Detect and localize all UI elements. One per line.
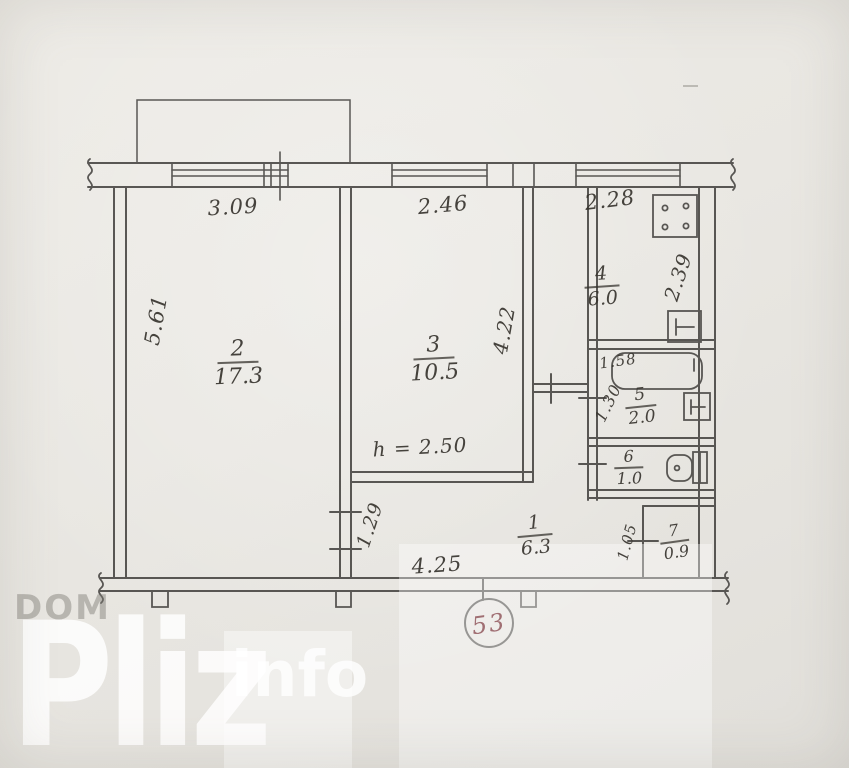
toilet-icon <box>667 452 707 483</box>
room-label-5: 5 2.0 <box>623 385 658 429</box>
room-4-area: 6.0 <box>587 286 619 310</box>
bath-sink-icon <box>684 393 710 420</box>
watermark-info-text: info <box>231 638 368 711</box>
room-2-number: 2 <box>217 337 258 364</box>
dim-top-mid: 2.46 <box>417 191 470 219</box>
watermark-pliz-text: Pliz <box>10 604 266 767</box>
room-label-4: 4 6.0 <box>583 263 621 310</box>
room-label-6: 6 1.0 <box>614 448 645 488</box>
room-label-3: 3 10.5 <box>408 332 460 386</box>
stove-icon <box>653 195 697 237</box>
room-3-area: 10.5 <box>410 358 460 386</box>
room-3-number: 3 <box>412 332 454 360</box>
ceiling-height-note: h = 2.50 <box>372 433 468 462</box>
balcony-outline <box>137 100 350 163</box>
room-1-area: 6.3 <box>520 535 552 559</box>
room-6-area: 1.0 <box>616 468 642 488</box>
dim-hall-bottom: 4.25 <box>411 551 463 578</box>
room-label-2: 2 17.3 <box>213 337 264 390</box>
dim-top-left: 3.09 <box>207 194 259 221</box>
room-4-number: 4 <box>583 263 619 288</box>
room-5-area: 2.0 <box>628 406 657 429</box>
scan-artifact-dash <box>683 85 698 87</box>
kitchen-sink-icon <box>668 311 701 342</box>
room-7-area: 0.9 <box>662 541 690 563</box>
floorplan-photo: 3.09 2.46 2.28 5.61 4.22 2.39 1.58 1.30 … <box>0 0 849 768</box>
room-6-number: 6 <box>614 448 644 469</box>
unit-number-badge: 53 <box>470 608 508 641</box>
room-2-area: 17.3 <box>214 363 264 390</box>
room-1-number: 1 <box>516 512 553 538</box>
room-label-7: 7 0.9 <box>658 521 692 563</box>
room-label-1: 1 6.3 <box>516 512 555 560</box>
